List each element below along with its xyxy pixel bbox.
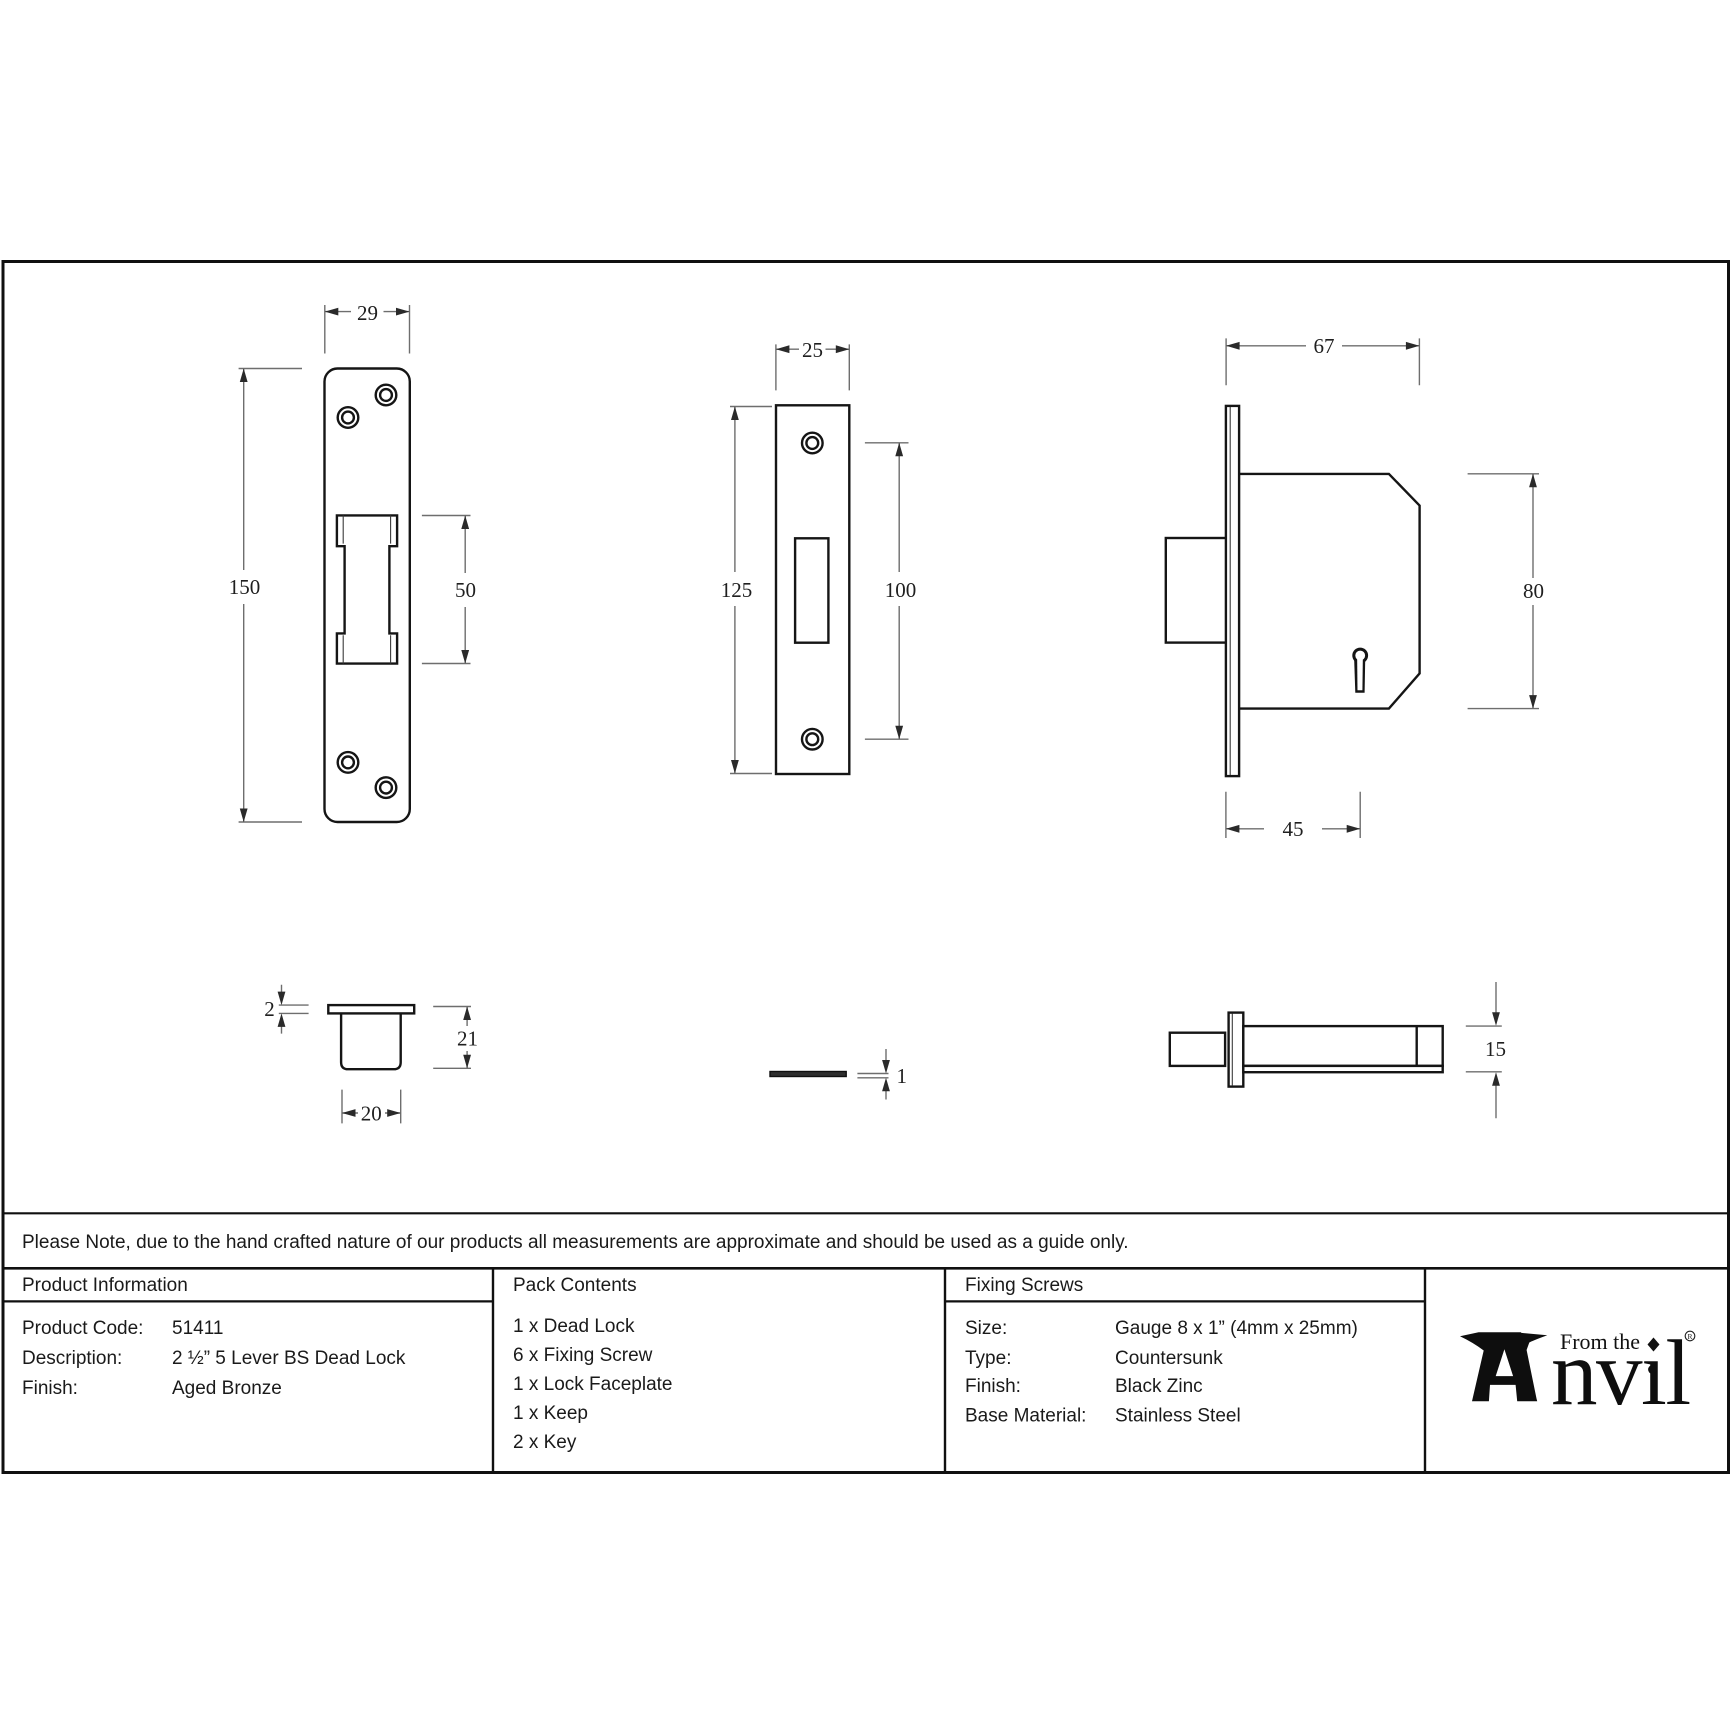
- svg-text:Product Code:: Product Code:: [22, 1318, 143, 1339]
- svg-text:Finish:: Finish:: [22, 1378, 78, 1399]
- svg-text:Aged Bronze: Aged Bronze: [172, 1378, 282, 1399]
- svg-text:Product Information: Product Information: [22, 1275, 188, 1296]
- svg-text:Fixing Screws: Fixing Screws: [965, 1275, 1083, 1296]
- svg-text:R: R: [1687, 1332, 1692, 1341]
- svg-text:Stainless Steel: Stainless Steel: [1115, 1406, 1241, 1427]
- svg-text:Black Zinc: Black Zinc: [1115, 1376, 1203, 1397]
- svg-text:2: 2: [264, 997, 275, 1021]
- svg-text:21: 21: [457, 1027, 478, 1051]
- svg-text:Type:: Type:: [965, 1348, 1011, 1369]
- svg-text:Gauge 8 x 1” (4mm x 25mm): Gauge 8 x 1” (4mm x 25mm): [1115, 1318, 1358, 1339]
- svg-text:1: 1: [897, 1064, 908, 1088]
- svg-text:15: 15: [1485, 1037, 1506, 1061]
- svg-text:Please Note, due to the hand c: Please Note, due to the hand crafted nat…: [22, 1232, 1129, 1253]
- svg-text:51411: 51411: [172, 1318, 223, 1339]
- svg-text:80: 80: [1523, 579, 1544, 603]
- svg-text:2 x Key: 2 x Key: [513, 1432, 577, 1453]
- svg-text:Size:: Size:: [965, 1318, 1007, 1339]
- svg-text:6 x Fixing Screw: 6 x Fixing Screw: [513, 1345, 653, 1366]
- svg-text:125: 125: [721, 578, 753, 602]
- svg-text:100: 100: [885, 578, 917, 602]
- svg-text:25: 25: [802, 338, 823, 362]
- svg-text:45: 45: [1283, 817, 1304, 841]
- svg-text:Finish:: Finish:: [965, 1376, 1021, 1397]
- svg-text:Countersunk: Countersunk: [1115, 1348, 1223, 1369]
- svg-text:Base Material:: Base Material:: [965, 1406, 1086, 1427]
- svg-text:1 x Lock Faceplate: 1 x Lock Faceplate: [513, 1374, 672, 1395]
- svg-text:2 ½” 5 Lever BS Dead Lock: 2 ½” 5 Lever BS Dead Lock: [172, 1348, 406, 1369]
- svg-text:1 x Dead Lock: 1 x Dead Lock: [513, 1316, 635, 1337]
- svg-text:67: 67: [1314, 334, 1335, 358]
- svg-text:Description:: Description:: [22, 1348, 122, 1369]
- svg-text:20: 20: [361, 1102, 382, 1126]
- svg-text:150: 150: [229, 575, 261, 599]
- svg-text:nvıl: nvıl: [1551, 1322, 1690, 1425]
- svg-text:50: 50: [455, 578, 476, 602]
- svg-text:Pack Contents: Pack Contents: [513, 1275, 637, 1296]
- svg-text:1 x Keep: 1 x Keep: [513, 1403, 588, 1424]
- svg-text:29: 29: [357, 301, 378, 325]
